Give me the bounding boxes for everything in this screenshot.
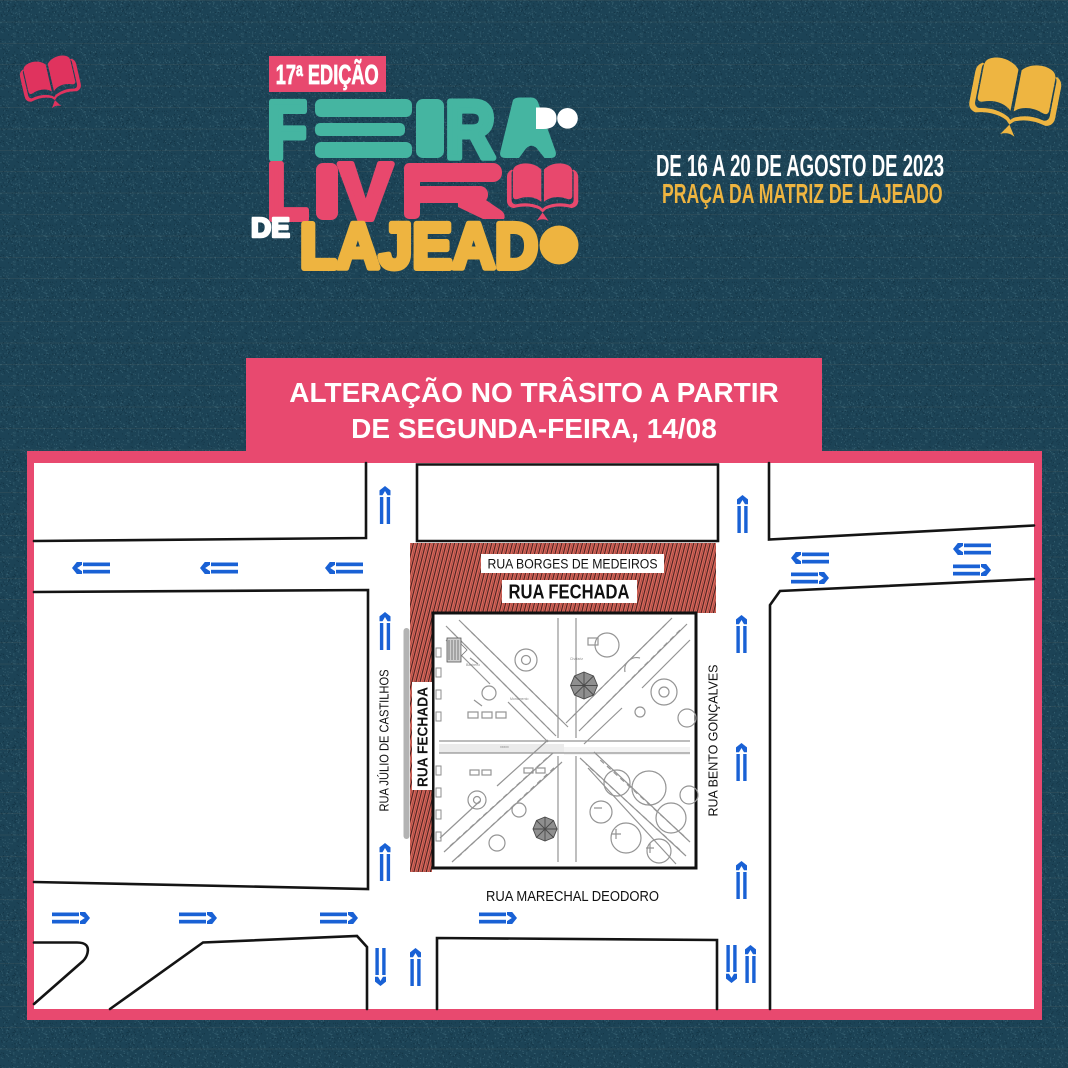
svg-text:LAJEAD: LAJEAD (300, 210, 538, 282)
svg-text:RUA MARECHAL DEODORO: RUA MARECHAL DEODORO (486, 889, 659, 905)
svg-text:R: R (445, 85, 495, 177)
svg-text:RUA FECHADA: RUA FECHADA (415, 687, 432, 787)
svg-text:Banheiro: Banheiro (466, 663, 480, 667)
svg-text:Monumento: Monumento (510, 697, 529, 701)
svg-text:Chafariz: Chafariz (570, 657, 583, 661)
svg-text:RUA BENTO GONÇALVES: RUA BENTO GONÇALVES (706, 664, 721, 816)
svg-text:DE: DE (251, 212, 290, 243)
svg-text:xxxxx: xxxxx (500, 745, 509, 749)
svg-text:RUA JÚLIO DE CASTILHOS: RUA JÚLIO DE CASTILHOS (377, 669, 392, 811)
svg-text:RUA FECHADA: RUA FECHADA (509, 582, 630, 604)
svg-text:RUA BORGES DE MEDEIROS: RUA BORGES DE MEDEIROS (488, 557, 658, 572)
